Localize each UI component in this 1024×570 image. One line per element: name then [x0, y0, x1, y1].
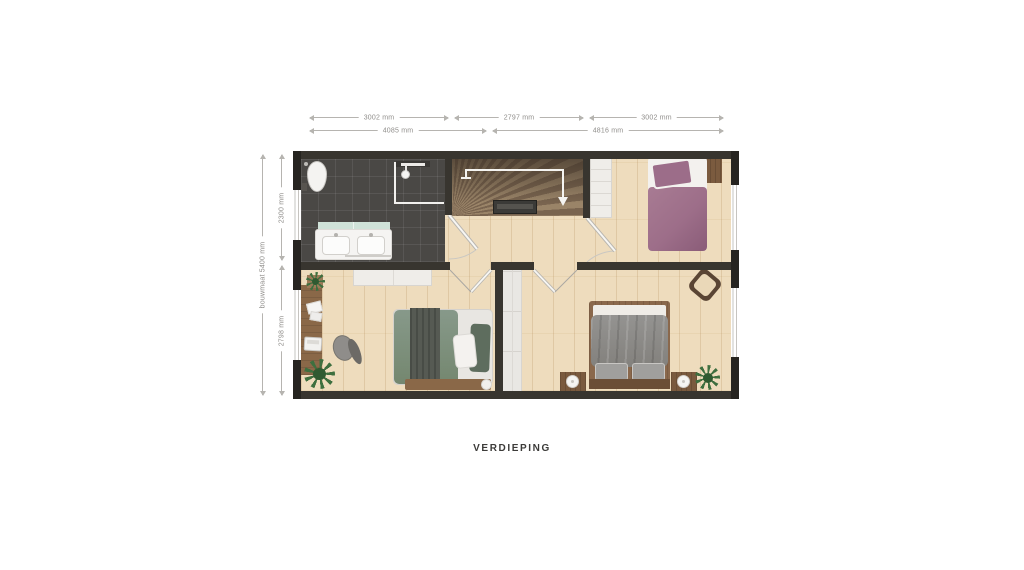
floor-title: VERDIEPING: [462, 443, 562, 454]
floorplan-page: 3002 mm 2797 mm 3002 mm 4085 mm 4816 mm …: [0, 0, 1024, 570]
dimension-left-bottom: 2798 mm: [281, 266, 282, 395]
dimension-label: 4816 mm: [588, 128, 629, 135]
dimension-label: 3002 mm: [359, 115, 400, 122]
dimension-top-left: 3002 mm: [310, 117, 448, 118]
window: [293, 290, 301, 360]
bedroom-door: [534, 270, 577, 292]
dimension-label: 2798 mm: [279, 310, 286, 351]
window: [731, 185, 739, 250]
exterior-wall-bottom: [293, 391, 739, 399]
dimension-label: 2300 mm: [279, 187, 286, 228]
dimension-label: bouwmaat 5400 mm: [260, 237, 267, 314]
bedroom-door: [587, 218, 615, 262]
dimension-label: 3002 mm: [636, 115, 677, 122]
dimension-bouwmaat: bouwmaat 5400 mm: [262, 155, 263, 395]
interior-wall-middle: [577, 262, 731, 270]
exterior-wall-left: [293, 151, 301, 190]
interior-wall-middle: [491, 262, 534, 270]
interior-wall-stairs: [583, 159, 590, 218]
dimension-top-right: 3002 mm: [590, 117, 723, 118]
interior-wall-middle: [301, 262, 450, 270]
dimension-left-top: 2300 mm: [281, 155, 282, 260]
dimension-top-middle: 2797 mm: [455, 117, 583, 118]
dimension-label: 2797 mm: [499, 115, 540, 122]
interior-wall-bedrooms: [495, 270, 503, 391]
window: [293, 190, 301, 240]
dimension-label: 4085 mm: [378, 128, 419, 135]
dimension-total-right: 4816 mm: [493, 130, 723, 131]
interior-wall-bathroom: [445, 159, 452, 215]
window: [731, 288, 739, 357]
exterior-wall-right: [731, 151, 739, 185]
exterior-wall-left: [293, 240, 301, 290]
exterior-wall-right: [731, 250, 739, 288]
stairs-direction-arrow: [461, 170, 568, 206]
floorplan: [293, 151, 739, 399]
dimension-total-left: 4085 mm: [310, 130, 486, 131]
bedroom-door: [450, 270, 491, 292]
exterior-wall-top: [293, 151, 739, 159]
bathroom-door: [449, 215, 477, 259]
exterior-wall-right: [731, 357, 739, 399]
plan-linework: [293, 151, 739, 399]
exterior-wall-left: [293, 360, 301, 399]
